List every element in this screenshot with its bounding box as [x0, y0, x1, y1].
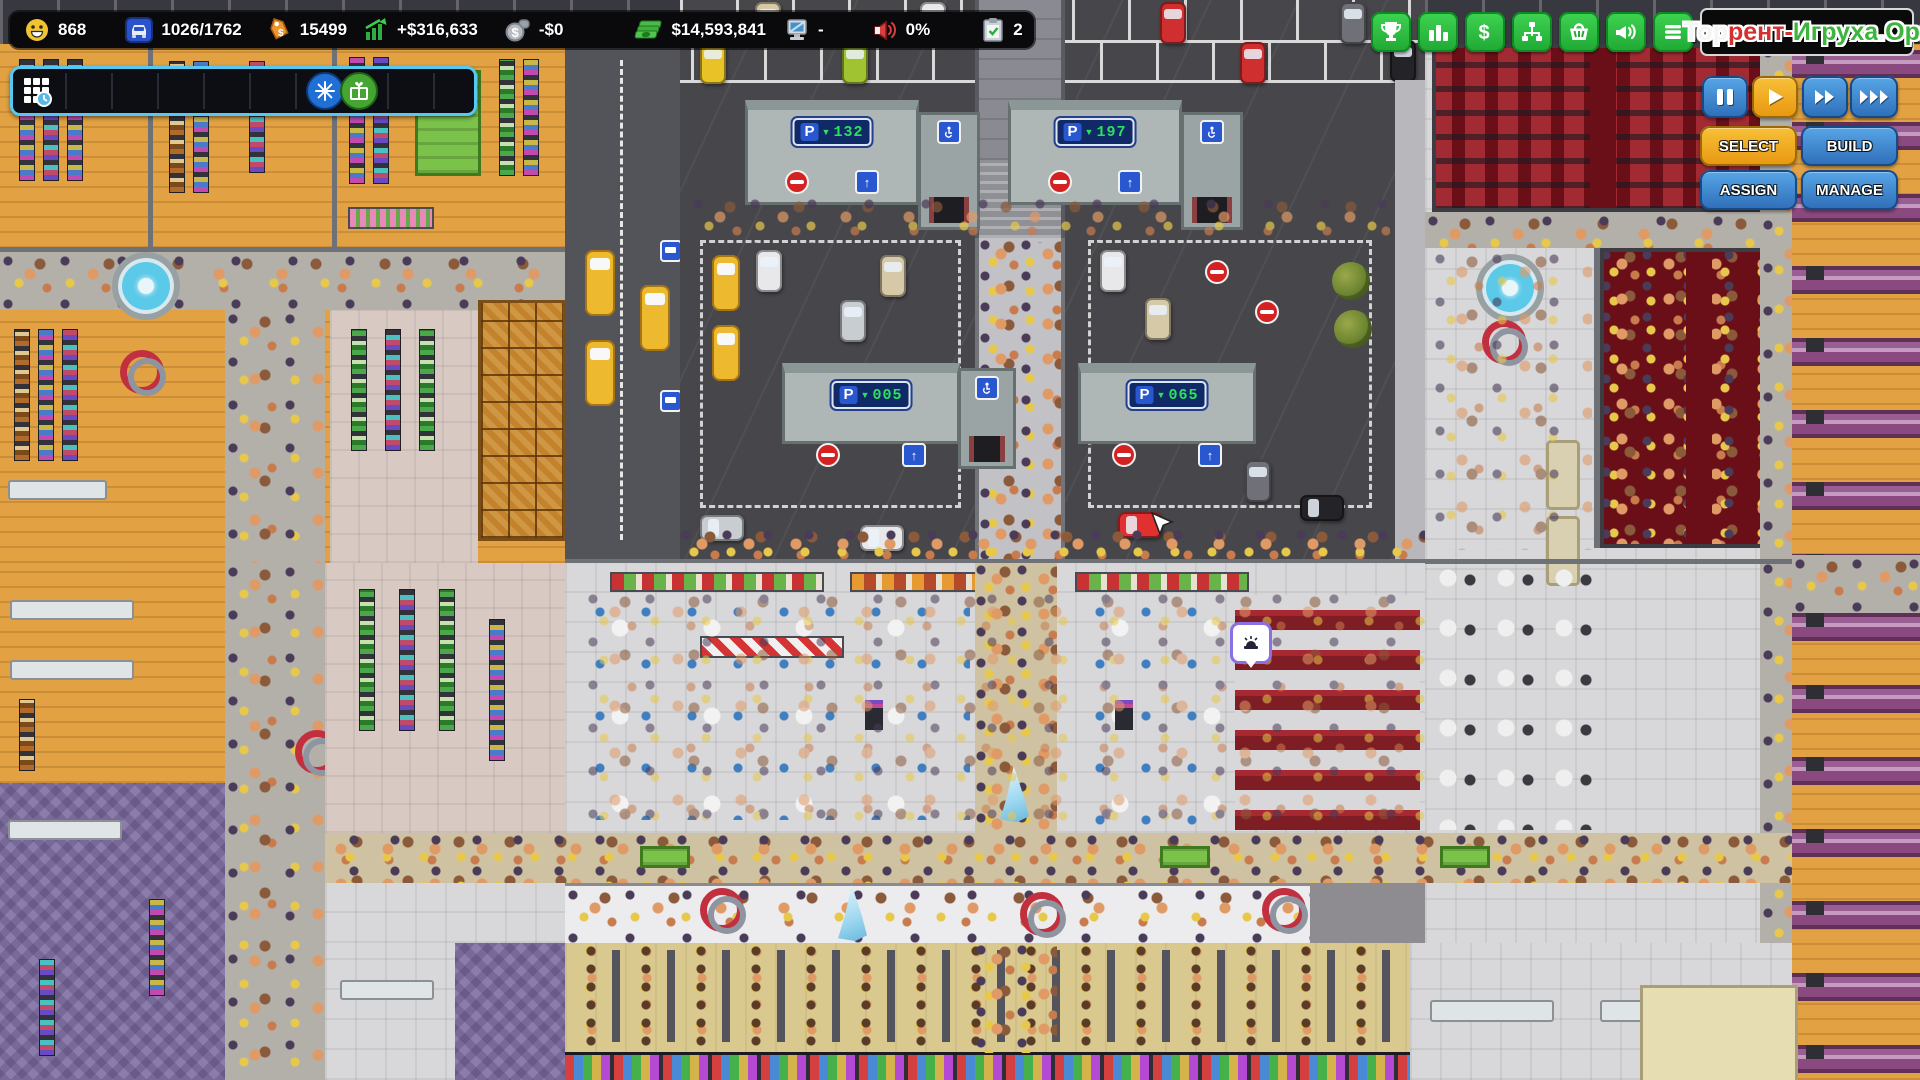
store-shelf: [63, 330, 77, 460]
ring-sculpture: [700, 888, 746, 934]
parking-sign: P ▼ 132: [793, 118, 872, 146]
parked-car: [1300, 495, 1344, 521]
clothing-shop-floor: [455, 943, 565, 1080]
smiley-icon: [24, 17, 50, 43]
trophy-icon: [1379, 20, 1403, 44]
disabled-parking-icon: [1200, 120, 1224, 144]
planter: [1160, 846, 1210, 868]
stat-computers: -: [784, 17, 824, 43]
truck-sign: [660, 240, 682, 262]
up-arrow-sign: ↑: [855, 170, 879, 194]
clipboard-check-icon: [981, 17, 1005, 43]
fast-forward-icon: [1813, 87, 1837, 107]
logo-text: Орг: [1885, 18, 1920, 47]
parking-sign: P ▼ 005: [832, 381, 911, 409]
bar-chart-icon: [1426, 20, 1450, 44]
parking-count: 132: [833, 124, 863, 141]
store-shelf: [40, 960, 54, 1055]
hierarchy-icon: [1520, 20, 1544, 44]
salon-chairs: [1432, 560, 1592, 830]
food-court-tables: [590, 600, 970, 820]
parked-car: [840, 300, 866, 342]
quickbar-slot-separator: [295, 73, 297, 109]
fountain: [112, 252, 180, 320]
products-value: 15499: [300, 20, 347, 40]
fountain: [1476, 254, 1544, 322]
cash-icon: [633, 18, 663, 42]
achievements-button[interactable]: [1371, 12, 1411, 52]
snowflake-icon[interactable]: [306, 72, 344, 110]
down-arrow-icon: ▼: [861, 390, 870, 400]
planter: [640, 846, 690, 868]
food-counter: [610, 572, 824, 592]
bush: [1334, 310, 1372, 348]
fastest-forward-button[interactable]: [1850, 76, 1898, 118]
quickbar-slot-separator: [111, 73, 113, 109]
parked-car: [842, 42, 868, 84]
no-entry-sign: [816, 443, 840, 467]
parked-car: [1160, 2, 1186, 44]
kiosk-door: [1192, 197, 1232, 223]
kiosk-door: [929, 197, 969, 223]
parking-p-chip: P: [840, 386, 858, 404]
fast-forward-button[interactable]: [1802, 76, 1848, 118]
parking-count: 197: [1096, 124, 1126, 141]
logo-text: Тор: [1684, 18, 1728, 47]
quickbar-slot-separator: [433, 73, 435, 109]
game-screen: P ▼ 132 ↑ P ▼ 197 ↑: [0, 0, 1920, 1080]
parking-kiosk: [1181, 112, 1243, 230]
quickbar-slot-separator: [387, 73, 389, 109]
parking-sidewalk: [1395, 80, 1425, 563]
stat-cash: $14,593,841: [633, 18, 766, 42]
parking-gate-north-west: P ▼ 132 ↑: [745, 100, 919, 205]
quickbar-slot-separator: [249, 73, 251, 109]
up-arrow-sign: ↑: [1118, 170, 1142, 194]
checkout-counter: [10, 660, 134, 680]
stats-bar: 868 1026/1762 $ 15499 +$316,633 $ -$0 $1…: [10, 12, 1034, 48]
manage-mode-button[interactable]: MANAGE: [1801, 170, 1898, 210]
store-shelf: [386, 330, 400, 450]
price-tag-icon: $: [266, 17, 292, 43]
quickbar-slot-separator: [157, 73, 159, 109]
sofa: [1546, 440, 1580, 510]
checkout-counter: [10, 600, 134, 620]
shelf-strip: [565, 1052, 1410, 1080]
van: [712, 325, 740, 381]
computers-value: -: [818, 20, 824, 40]
stat-happiness: 868: [24, 17, 86, 43]
parked-car: [756, 250, 782, 292]
disabled-parking-icon: [937, 120, 961, 144]
tasks-value: 2: [1013, 20, 1022, 40]
quickbar-slot-separator: [203, 73, 205, 109]
no-parking-marker: [1205, 260, 1229, 284]
store-shelf: [150, 900, 164, 995]
stat-marketing: 0%: [872, 17, 931, 43]
parked-car: [860, 525, 904, 551]
road-dashed-line: [620, 60, 623, 540]
products-button[interactable]: [1559, 12, 1599, 52]
stat-products: $ 15499: [266, 17, 347, 43]
statistics-button[interactable]: [1418, 12, 1458, 52]
van: [712, 255, 740, 311]
logo-text: рент-: [1728, 18, 1793, 47]
stat-expenses: $ -$0: [505, 17, 564, 43]
cash-value: $14,593,841: [671, 20, 766, 40]
bus: [640, 285, 670, 351]
moving-car: [1118, 512, 1162, 538]
parking-p-chip: P: [1064, 123, 1082, 141]
gift-icon[interactable]: [340, 72, 378, 110]
store-shelf: [20, 700, 34, 770]
siren-icon: [1241, 634, 1261, 652]
down-arrow-icon: ▼: [822, 127, 831, 137]
disabled-parking-icon: [975, 376, 999, 400]
parking-count: 065: [1168, 387, 1198, 404]
parked-car: [880, 255, 906, 297]
staff-button[interactable]: [1512, 12, 1552, 52]
up-arrow-sign: ↑: [1198, 443, 1222, 467]
stat-profit: +$316,633: [363, 17, 478, 43]
parking-p-chip: P: [801, 123, 819, 141]
store-shelf: [39, 330, 53, 460]
parking-gate-south-west: P ▼ 005 ↑: [782, 363, 960, 444]
no-parking-marker: [1255, 300, 1279, 324]
pause-button[interactable]: [1702, 76, 1748, 118]
crowd: [680, 528, 1425, 563]
parking-value: 1026/1762: [161, 20, 241, 40]
bus: [585, 340, 615, 406]
quickbar: [10, 66, 477, 116]
food-counter: [1075, 572, 1249, 592]
parking-kiosk: [958, 368, 1016, 469]
chart-up-icon: [363, 17, 389, 43]
parking-count: 005: [872, 387, 902, 404]
bush: [1332, 262, 1370, 300]
parking-kiosk: [918, 112, 980, 230]
play-button[interactable]: [1752, 76, 1798, 118]
food-court-tables: [1090, 600, 1230, 825]
dollar-icon: $: [1473, 20, 1497, 44]
parked-car: [1240, 42, 1266, 84]
pallet-stack: [478, 300, 566, 541]
hamburger-icon: [1661, 20, 1685, 44]
left-lower-corridor: [225, 563, 325, 1080]
marketing-button[interactable]: [1606, 12, 1646, 52]
pause-icon: [1714, 87, 1736, 107]
expenses-value: -$0: [539, 20, 564, 40]
cream-shop-floor: [1640, 985, 1798, 1080]
alert-pin[interactable]: [1230, 622, 1272, 664]
wall: [1594, 248, 1600, 548]
checkout-counter: [8, 480, 107, 500]
store-shelf: [15, 330, 29, 460]
up-arrow-sign: ↑: [902, 443, 926, 467]
basket-icon: [1567, 20, 1591, 44]
store-shelf: [490, 620, 504, 760]
kiosk-door: [969, 436, 1005, 462]
down-arrow-icon: ▼: [1157, 390, 1166, 400]
walkway-tile: [325, 883, 565, 943]
happiness-value: 868: [58, 20, 86, 40]
diner-booth-row: [565, 883, 1310, 946]
svg-text:$: $: [278, 28, 284, 39]
marketing-value: 0%: [906, 20, 931, 40]
store-shelf: [500, 60, 514, 175]
select-mode-button[interactable]: SELECT: [1700, 126, 1797, 166]
checkout-counter: [1430, 1000, 1554, 1022]
fastest-forward-icon: [1859, 87, 1889, 107]
computer-icon: [784, 17, 810, 43]
money-bag-icon: $: [505, 17, 531, 43]
store-shelf: [352, 330, 366, 450]
store-shelf: [400, 590, 414, 730]
store-shelf: [440, 590, 454, 730]
calendar-clock-icon[interactable]: [21, 75, 53, 112]
arcade-machine: [1115, 700, 1133, 730]
store-shelf: [360, 590, 374, 730]
parking-sign: P ▼ 197: [1056, 118, 1135, 146]
wall: [0, 247, 565, 252]
store-shelf: [420, 330, 434, 450]
bowling-lanes: [1792, 613, 1920, 1080]
checkout-counter: [340, 980, 434, 1000]
megaphone-icon: [872, 17, 898, 43]
parked-car: [1340, 2, 1366, 44]
stat-parking: 1026/1762: [125, 17, 241, 43]
parked-car: [700, 42, 726, 84]
parking-p-chip: P: [1136, 386, 1154, 404]
parking-gate-south-east: P ▼ 065 ↑: [1078, 363, 1256, 444]
parking-sign: P ▼ 065: [1128, 381, 1207, 409]
ice-sculpture: [833, 885, 867, 941]
parking-gate-north-east: P ▼ 197 ↑: [1008, 100, 1182, 205]
play-icon: [1764, 87, 1786, 107]
checkout-lanes: [565, 950, 1410, 1042]
ring-sculpture: [1262, 888, 1308, 934]
store-shelf: [524, 60, 538, 175]
ring-sculpture: [1482, 320, 1528, 366]
no-entry-sign: [1048, 170, 1072, 194]
truck-sign: [660, 390, 682, 412]
car-icon: [125, 17, 153, 43]
parked-car: [1100, 250, 1126, 292]
megaphone-sound-icon: [1614, 20, 1638, 44]
no-entry-sign: [785, 170, 809, 194]
no-entry-sign: [1112, 443, 1136, 467]
flower-stand: [348, 207, 434, 229]
down-arrow-icon: ▼: [1085, 127, 1094, 137]
stat-tasks: 2: [981, 17, 1022, 43]
food-counter: [850, 572, 1004, 592]
site-watermark: Торрент-Игруха.Орг: [1700, 8, 1914, 56]
ring-sculpture: [120, 350, 166, 396]
build-mode-button[interactable]: BUILD: [1801, 126, 1898, 166]
checkout-counter: [8, 820, 122, 840]
ring-sculpture: [1020, 892, 1066, 938]
white-shop-floor: [325, 943, 455, 1080]
game-world-map[interactable]: P ▼ 132 ↑ P ▼ 197 ↑: [0, 0, 1920, 1080]
parked-car: [1145, 298, 1171, 340]
profit-value: +$316,633: [397, 20, 478, 40]
assign-mode-button[interactable]: ASSIGN: [1700, 170, 1797, 210]
parked-car: [700, 515, 744, 541]
logo-text: Игруха: [1793, 18, 1878, 47]
quickbar-slot-separator: [65, 73, 67, 109]
bus: [585, 250, 615, 316]
svg-text:$: $: [1479, 22, 1490, 44]
parked-car: [1245, 460, 1271, 502]
planter: [1440, 846, 1490, 868]
svg-text:$: $: [511, 25, 519, 40]
arcade-machine: [865, 700, 883, 730]
finances-button[interactable]: $: [1465, 12, 1505, 52]
